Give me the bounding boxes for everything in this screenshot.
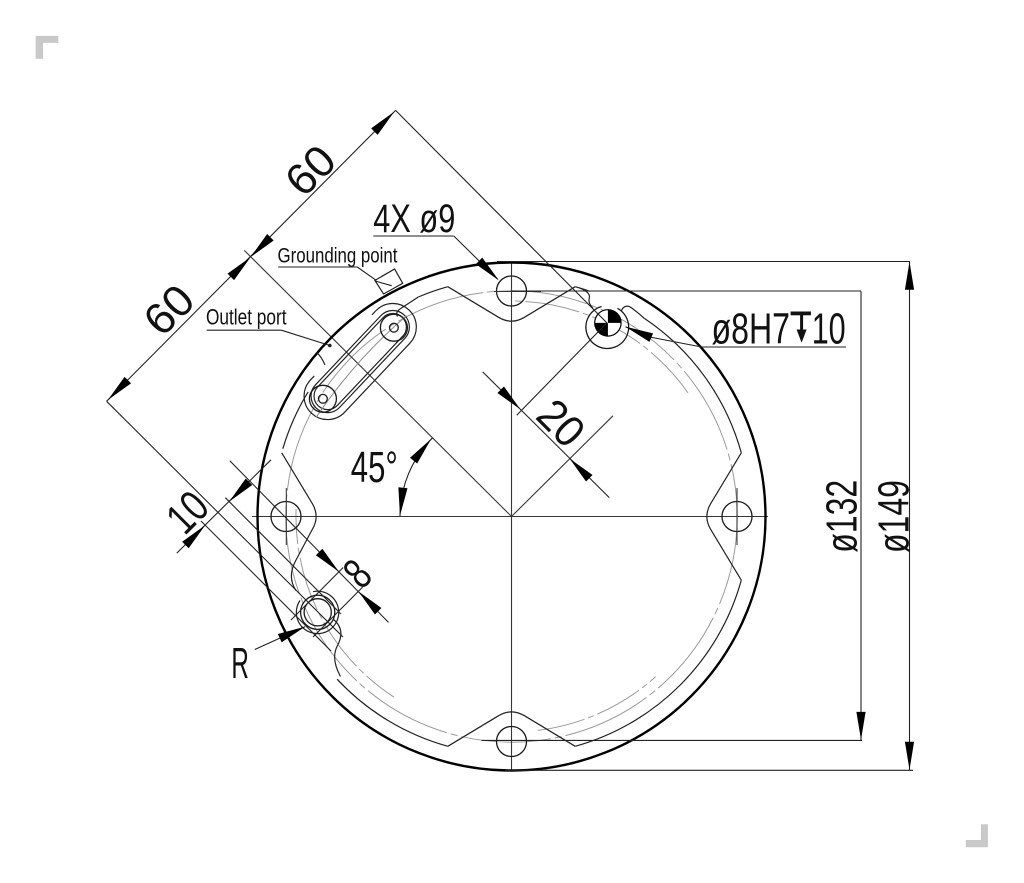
svg-text:10: 10 (812, 304, 846, 353)
svg-text:45°: 45° (351, 443, 398, 492)
svg-text:ø132: ø132 (818, 480, 867, 553)
svg-text:Grounding point: Grounding point (278, 244, 398, 267)
svg-text:R: R (231, 639, 249, 688)
svg-text:ø149: ø149 (869, 480, 918, 553)
svg-text:ø8H7: ø8H7 (712, 304, 791, 353)
svg-text:Outlet port: Outlet port (206, 305, 287, 330)
svg-text:4X ø9: 4X ø9 (373, 197, 455, 241)
